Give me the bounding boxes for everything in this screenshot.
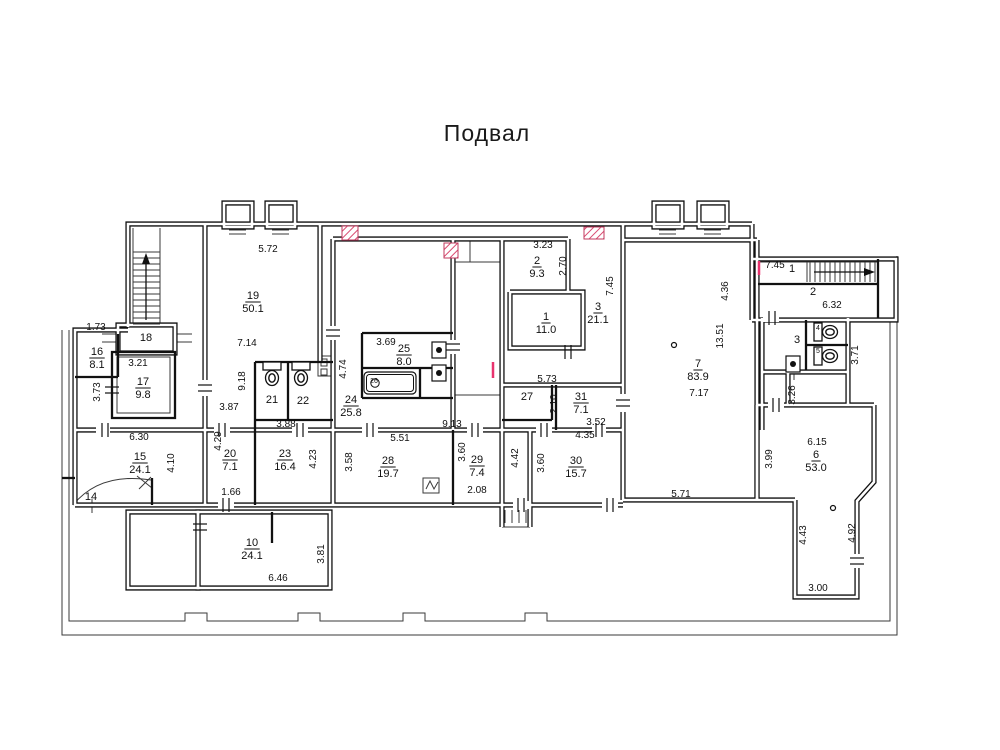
svg-text:25.8: 25.8	[340, 407, 361, 419]
svg-text:2: 2	[810, 286, 816, 298]
svg-text:16.4: 16.4	[274, 461, 295, 473]
svg-text:7: 7	[695, 358, 701, 370]
svg-text:2: 2	[534, 255, 540, 267]
svg-text:3.26: 3.26	[787, 385, 798, 405]
svg-text:5.71: 5.71	[671, 489, 691, 500]
svg-text:13.51: 13.51	[715, 323, 726, 348]
svg-text:3.58: 3.58	[344, 452, 355, 472]
svg-text:9.3: 9.3	[529, 268, 544, 280]
svg-text:7.45: 7.45	[765, 260, 785, 271]
svg-text:1.66: 1.66	[221, 487, 241, 498]
svg-text:3.21: 3.21	[128, 358, 148, 369]
svg-text:4.23: 4.23	[308, 449, 319, 469]
svg-text:3.52: 3.52	[586, 417, 606, 428]
door-openings-layer	[96, 314, 861, 568]
svg-text:8.0: 8.0	[396, 356, 411, 368]
svg-text:5.51: 5.51	[390, 433, 410, 444]
svg-text:24.1: 24.1	[241, 550, 262, 562]
svg-text:1: 1	[789, 263, 795, 275]
svg-text:18: 18	[140, 332, 152, 344]
floor-plan-svg: 1950.1168.1179.81524.1207.12316.41024.12…	[0, 0, 1000, 750]
svg-text:3.00: 3.00	[808, 583, 828, 594]
svg-text:6.30: 6.30	[129, 432, 149, 443]
svg-text:5: 5	[816, 348, 820, 355]
svg-text:7.14: 7.14	[237, 338, 257, 349]
svg-text:4.29: 4.29	[213, 431, 224, 451]
svg-text:3.60: 3.60	[536, 453, 547, 473]
svg-text:30: 30	[570, 455, 582, 467]
svg-text:9.8: 9.8	[135, 389, 150, 401]
svg-text:6: 6	[813, 449, 819, 461]
svg-text:29: 29	[471, 454, 483, 466]
svg-text:3.88: 3.88	[276, 419, 296, 430]
svg-text:11.0: 11.0	[536, 324, 557, 336]
svg-text:2.70: 2.70	[558, 256, 569, 276]
svg-text:1: 1	[543, 311, 549, 323]
svg-text:17: 17	[137, 376, 149, 388]
svg-text:14: 14	[85, 491, 97, 503]
svg-text:3.71: 3.71	[850, 345, 861, 365]
labels-layer: 1950.1168.1179.81524.1207.12316.41024.12…	[85, 240, 861, 594]
svg-text:26: 26	[370, 378, 378, 385]
svg-text:4.35: 4.35	[575, 430, 595, 441]
svg-text:19: 19	[247, 290, 259, 302]
svg-text:6.15: 6.15	[807, 437, 827, 448]
svg-text:1.73: 1.73	[86, 322, 106, 333]
svg-text:31: 31	[575, 391, 587, 403]
svg-text:83.9: 83.9	[687, 371, 708, 383]
svg-text:5.72: 5.72	[258, 244, 278, 255]
svg-text:7.1: 7.1	[573, 404, 588, 416]
svg-text:6.32: 6.32	[822, 300, 842, 311]
svg-text:4.36: 4.36	[720, 281, 731, 301]
svg-text:6.46: 6.46	[268, 573, 288, 584]
svg-text:21.1: 21.1	[587, 314, 608, 326]
svg-text:27: 27	[521, 391, 533, 403]
svg-text:3.73: 3.73	[92, 382, 103, 402]
svg-text:5.73: 5.73	[537, 374, 557, 385]
svg-text:16: 16	[91, 346, 103, 358]
svg-text:9.13: 9.13	[442, 419, 462, 430]
svg-text:50.1: 50.1	[242, 303, 263, 315]
svg-text:3: 3	[794, 334, 800, 346]
svg-text:19.7: 19.7	[377, 468, 398, 480]
svg-text:3.81: 3.81	[316, 544, 327, 564]
svg-text:7.45: 7.45	[605, 276, 616, 296]
svg-text:22: 22	[297, 395, 309, 407]
svg-text:15.7: 15.7	[565, 468, 586, 480]
svg-text:3.60: 3.60	[457, 442, 468, 462]
svg-text:4.92: 4.92	[847, 523, 858, 543]
svg-text:25: 25	[398, 343, 410, 355]
svg-text:7.1: 7.1	[222, 461, 237, 473]
svg-text:4.43: 4.43	[798, 525, 809, 545]
svg-text:15: 15	[134, 451, 146, 463]
svg-text:10: 10	[246, 537, 258, 549]
svg-text:7.17: 7.17	[689, 388, 709, 399]
svg-text:28: 28	[382, 455, 394, 467]
svg-text:24: 24	[345, 394, 357, 406]
svg-text:3.69: 3.69	[376, 337, 396, 348]
svg-text:3.23: 3.23	[533, 240, 553, 251]
svg-text:2.08: 2.08	[467, 485, 487, 496]
svg-text:21: 21	[266, 394, 278, 406]
svg-text:4: 4	[816, 325, 820, 332]
svg-text:4.10: 4.10	[166, 453, 177, 473]
svg-text:2.10: 2.10	[549, 394, 560, 414]
hatched-wall-sections	[342, 226, 604, 258]
svg-text:3.87: 3.87	[219, 402, 239, 413]
svg-text:53.0: 53.0	[805, 462, 826, 474]
svg-text:24.1: 24.1	[129, 464, 150, 476]
svg-text:20: 20	[224, 448, 236, 460]
svg-text:4.42: 4.42	[510, 448, 521, 468]
svg-text:9.18: 9.18	[237, 371, 248, 391]
svg-text:7.4: 7.4	[469, 467, 484, 479]
svg-text:4.74: 4.74	[338, 359, 349, 379]
svg-text:23: 23	[279, 448, 291, 460]
svg-text:8.1: 8.1	[89, 359, 104, 371]
floor-plan-page: Подвал 1950.1168.1179.81524.1207.12316.4…	[0, 0, 1000, 750]
svg-text:3: 3	[595, 301, 601, 313]
svg-text:3.99: 3.99	[764, 449, 775, 469]
